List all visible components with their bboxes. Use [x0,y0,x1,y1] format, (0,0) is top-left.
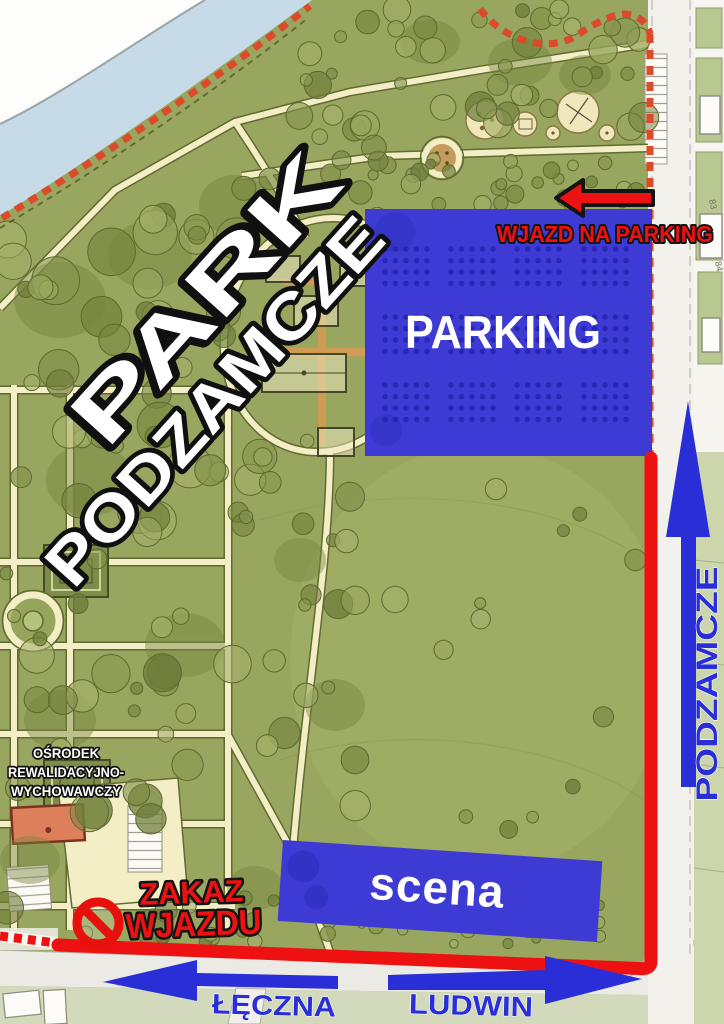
street-label-ludwin: LUDWIN [409,988,534,1022]
no-entry-icon [77,902,119,944]
street-label-podzamcze: PODZAMCZE [691,567,724,802]
facility-line3: WYCHOWAWCZY [11,783,122,799]
facility-line1: OŚRODEK [33,744,99,761]
park-map: 83 84 [0,0,724,1024]
no-entry-label: ZAKAZ WJAZDU [124,873,262,947]
facility-line2: REWALIDACYJNO- [8,764,124,780]
parking-entrance-label: WJAZD NA PARKING [497,221,713,247]
stage-label: scena [368,857,507,918]
east-buildings [696,8,722,364]
parking-label: PARKING [405,306,601,358]
parcel-number: 83 [707,198,719,210]
map-canvas: 83 84 [0,0,724,1024]
street-label-leczna: ŁĘCZNA [212,988,337,1022]
no-entry-line2: WJAZDU [125,903,262,947]
